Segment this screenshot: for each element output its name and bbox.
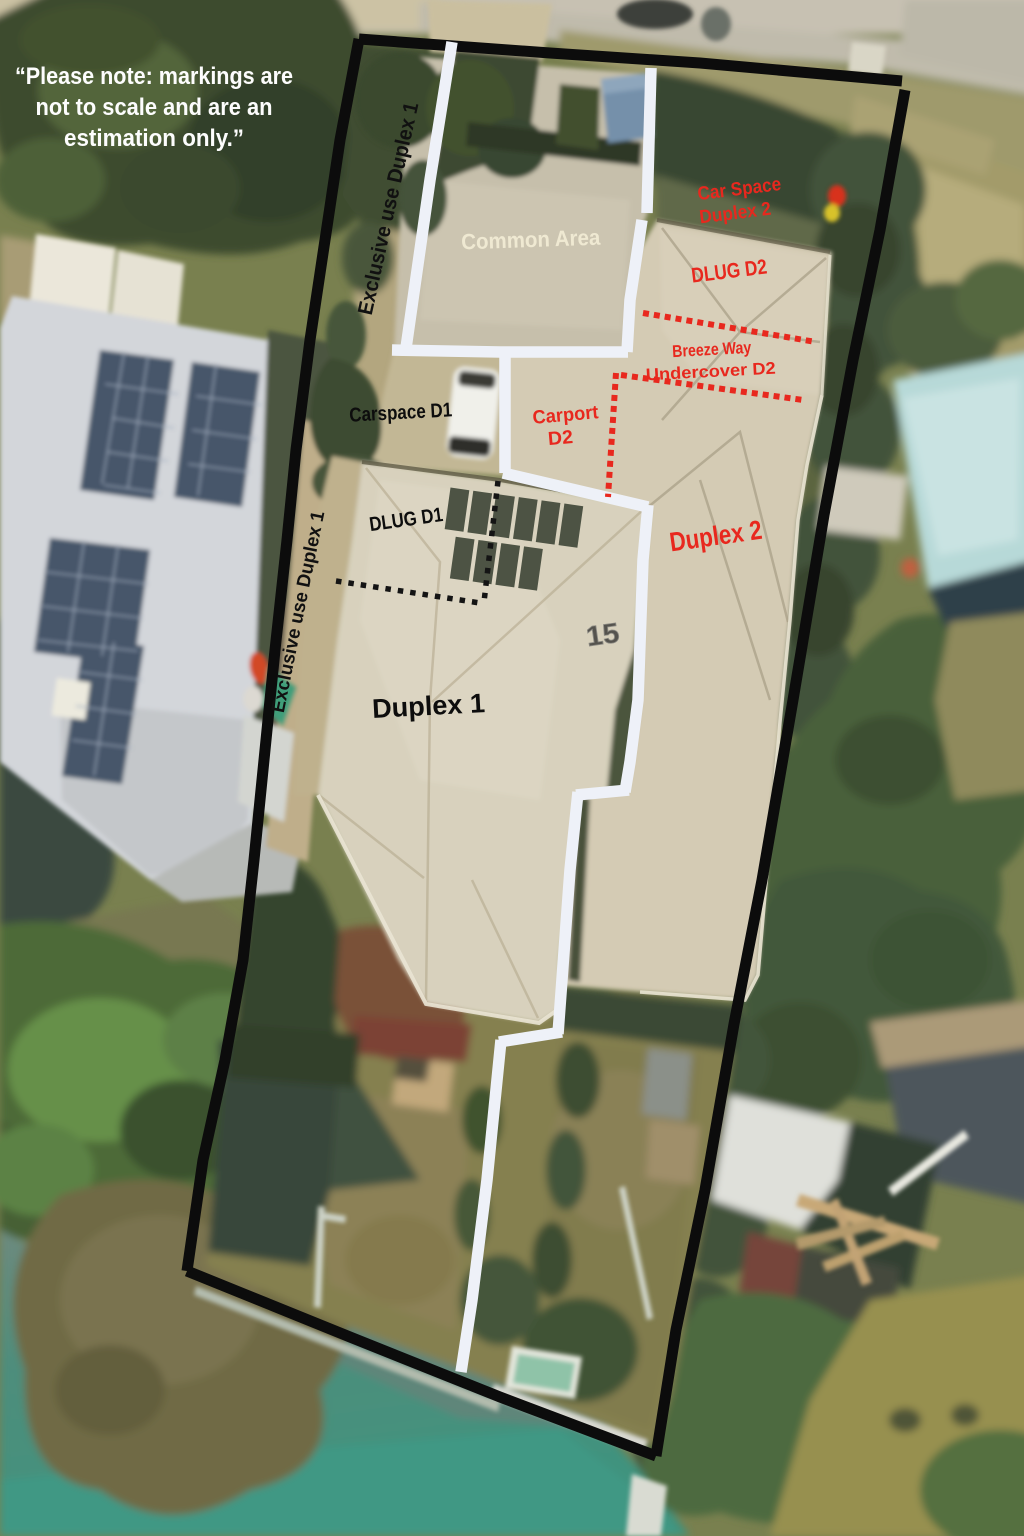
svg-text:D2: D2 <box>547 427 574 450</box>
svg-text:estimation only.”: estimation only.” <box>64 125 244 152</box>
svg-text:“Please note: markings are: “Please note: markings are <box>15 63 293 90</box>
svg-text:Common Area: Common Area <box>461 225 601 255</box>
svg-text:15: 15 <box>584 617 621 652</box>
svg-text:Duplex 1: Duplex 1 <box>371 688 485 724</box>
svg-text:not to scale and are an: not to scale and are an <box>36 94 273 121</box>
